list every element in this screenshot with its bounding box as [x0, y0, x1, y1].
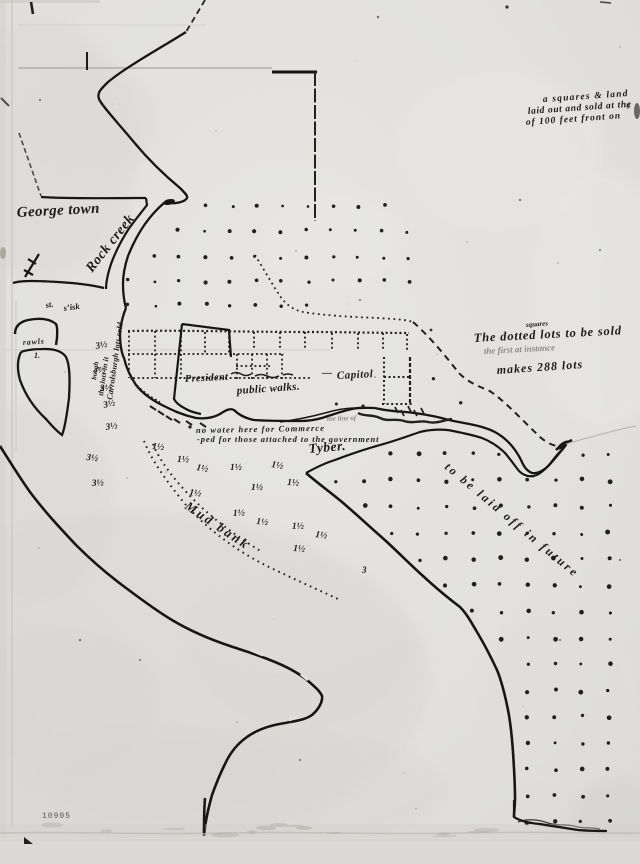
svg-text:1½: 1½ [256, 517, 269, 528]
svg-text:—: — [321, 368, 332, 379]
svg-text:1½: 1½ [189, 488, 202, 499]
svg-text:1½: 1½ [271, 460, 284, 472]
svg-text:10905: 10905 [42, 812, 71, 821]
svg-text:Capitol: Capitol [337, 368, 375, 382]
svg-text:1.: 1. [34, 351, 40, 360]
svg-text:1½: 1½ [230, 463, 242, 473]
svg-text:President: President [185, 372, 230, 385]
svg-text:1½: 1½ [152, 442, 165, 453]
svg-text:1½: 1½ [287, 478, 299, 489]
svg-text:st.: st. [44, 299, 54, 310]
svg-text:3½: 3½ [85, 453, 99, 464]
svg-text:1½: 1½ [315, 530, 328, 541]
svg-text:1½: 1½ [292, 522, 304, 532]
svg-text:3½: 3½ [92, 365, 106, 377]
svg-text:1½: 1½ [177, 455, 189, 465]
svg-text:3½: 3½ [104, 421, 118, 433]
svg-text:3½: 3½ [91, 478, 104, 489]
svg-text:3: 3 [361, 565, 367, 575]
svg-text:rawls: rawls [23, 336, 45, 346]
svg-text:-ped for those attached to the: -ped for those attached to the governmen… [197, 434, 379, 444]
svg-text:1½: 1½ [251, 483, 263, 493]
svg-text:1½: 1½ [195, 463, 208, 475]
svg-text:1½: 1½ [293, 544, 305, 555]
svg-text:the line of: the line of [327, 414, 357, 423]
svg-text:3½: 3½ [99, 384, 112, 394]
svg-text:1½: 1½ [233, 509, 245, 519]
